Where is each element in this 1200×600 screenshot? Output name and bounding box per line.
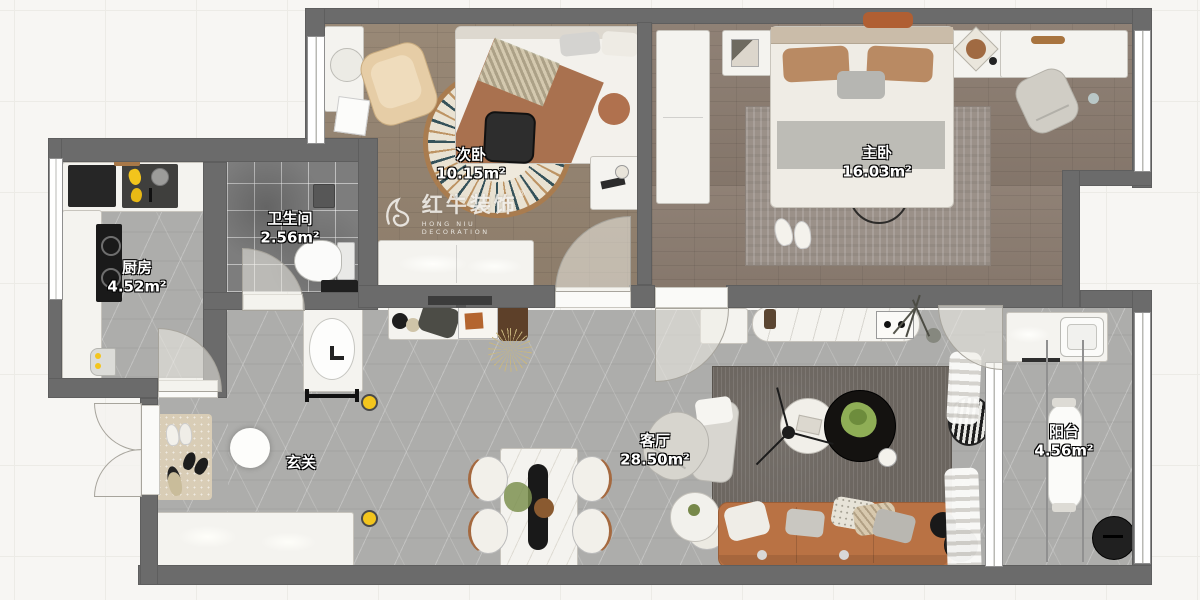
console-bottle [764,309,776,329]
watermark-subtitle: HONG NIU DECORATION [422,220,543,236]
wall-notch-left [1062,170,1080,308]
wardrobe-seam [456,245,457,283]
shoe-mat [156,414,212,500]
nightstand-decor-dot [615,165,629,179]
window-master-bedroom [1134,30,1151,172]
watermark-brand: 红牛装饰 [422,193,518,217]
wall-bathroom-bottom-left [203,292,243,310]
tap-dot-2 [95,363,101,369]
hongniu-bull-logo-icon [383,194,416,230]
floor-lamp-head [782,426,795,439]
banana-decor-2 [129,187,143,203]
wall-kitchen-bottom-left [48,378,158,398]
floor-dot-master [1088,93,1099,104]
banana-decor [127,168,143,187]
wardrobe-secondary [378,240,534,288]
window-kitchen [49,158,63,300]
headboard-bench-orange [863,12,913,28]
balcony-dark-strip [1022,358,1060,362]
branch-3 [893,306,918,335]
kitchen-faucet [149,188,152,202]
wall-bedroom-divider [637,22,652,285]
room-label-kitchen: 厨房 4.52m² [107,258,166,296]
dining-chair-2 [468,508,508,554]
sofa-leg-1 [757,550,767,560]
floor-plan-canvas: 红牛装饰® HONG NIU DECORATION 次卧 10.15m² 主卧 … [0,0,1200,600]
wall-entry-left-upper [140,398,158,405]
room-label-secondary-bedroom: 次卧 10.15m² [436,145,506,183]
hob-burner-1 [101,236,121,256]
pillow-gray [559,31,601,57]
dining-chair-1 [468,456,508,502]
coffee-cup [878,448,897,467]
kitchen-cooktop [122,164,178,208]
registered-mark: ® [518,189,526,198]
dining-chair-4 [572,508,612,554]
room-label-master-bedroom: 主卧 16.03m² [842,143,912,181]
side-round-table [670,492,720,542]
dining-plant [504,482,532,512]
shoe-tan [165,465,184,497]
kitchen-oven-unit [68,165,116,207]
sofa-pillow-gray [785,508,826,538]
book-decor [796,415,823,436]
watermark: 红牛装饰® HONG NIU DECORATION [383,188,543,236]
window-balcony [1134,312,1151,564]
shoe-white-2 [178,423,193,446]
drying-rack-cap-top [1052,398,1076,407]
kitchen-small-sink [90,348,116,376]
door-threshold-master-bedroom [655,287,728,308]
tap-dot-1 [95,353,101,359]
window-secondary-bedroom [307,36,325,144]
tray-brown-disc [966,39,986,59]
grass-plant [488,328,532,372]
wall-kitchen-bath-top [48,138,378,162]
console-leaning-art [458,307,498,339]
papers-decor [334,96,371,136]
kitchen-sink-bowl [151,168,169,186]
desk-chair-secondary [330,48,364,82]
robot-vacuum-slot [1103,535,1123,538]
side-table-plant [688,504,700,516]
tv-stand-line [456,305,466,308]
wall-top [305,8,1152,24]
towel-rack-end-right [355,389,359,402]
wall-entry-left-lower [140,493,158,585]
dining-bowl [534,498,554,518]
drying-rack-cap-bottom [1052,503,1076,512]
desk-wood-handle [1031,36,1065,44]
wardrobe-master [656,30,710,204]
art-orange-detail [464,312,483,329]
door-threshold-entry [140,405,160,495]
entry-door-leaf-top [94,403,142,451]
branch-plant [884,292,946,350]
room-label-entry: 玄关 [286,454,316,473]
entry-stool [230,428,270,468]
entry-door-leaf-bottom [94,449,142,497]
wall-bedrooms-bottom-2 [629,285,655,308]
switch-dot-upper [361,394,378,411]
towel-rack-end-left [305,389,309,402]
shoe-cabinet [150,512,354,567]
armchair-cushion [368,52,425,111]
nightstand-art [731,39,759,67]
bathroom-washer-column [313,184,335,208]
chair-seam [1036,104,1069,121]
curtain-lower [944,467,982,572]
robot-vacuum [1092,516,1136,560]
nightstand-secondary [590,156,640,210]
room-label-balcony: 阳台 4.56m² [1034,422,1093,460]
pillow-round-brown [598,93,630,125]
tray-black-dot [989,57,997,65]
pillow-white [601,31,639,57]
switch-dot-lower [361,510,378,527]
window-living-balcony [985,362,1003,567]
pillow-master-small [837,71,885,99]
washbasin-faucet-arm [330,356,344,360]
room-label-living-room: 客厅 28.50m² [620,431,690,469]
room-label-bathroom: 卫生间 2.56m² [260,209,319,247]
nightstand-master-left [722,30,772,76]
desk-master [1000,30,1128,78]
wardrobe-master-seam [663,117,703,118]
sofa-leg-2 [839,550,849,560]
wall-tv [428,296,492,305]
dining-chair-3 [572,456,612,502]
wall-bottom [138,565,1152,585]
bed-headboard-master [771,27,953,44]
towel-rack-bar [306,394,358,398]
plant-green-dark [849,409,867,425]
